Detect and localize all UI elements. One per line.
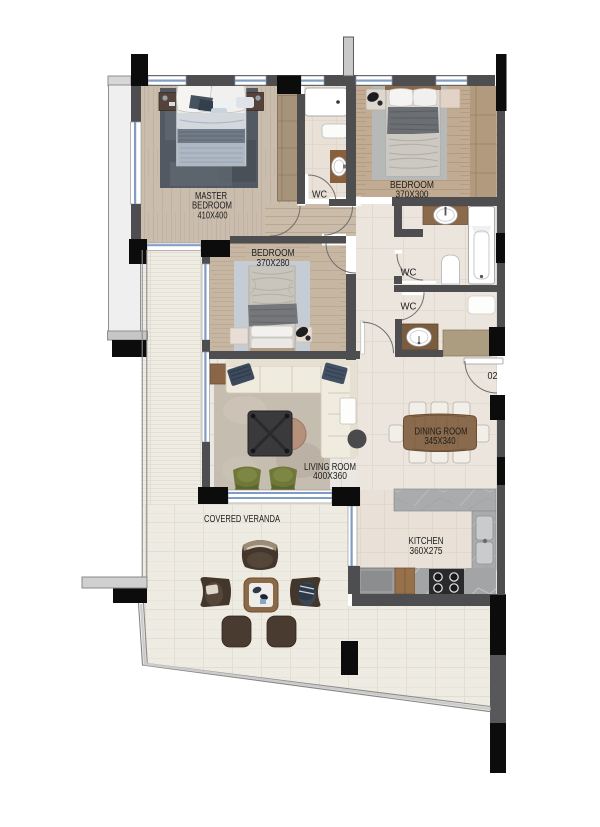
- svg-text:WC: WC: [401, 302, 417, 313]
- svg-text:WC: WC: [401, 268, 417, 279]
- svg-text:410X400: 410X400: [198, 210, 228, 221]
- svg-text:345X340: 345X340: [425, 436, 456, 447]
- svg-text:370X300: 370X300: [396, 190, 429, 201]
- svg-text:WC: WC: [312, 190, 327, 201]
- svg-text:370X280: 370X280: [257, 258, 290, 269]
- svg-text:KITCHEN: KITCHEN: [409, 536, 444, 547]
- svg-text:COVERED VERANDA: COVERED VERANDA: [204, 514, 280, 525]
- svg-text:02: 02: [488, 371, 498, 382]
- svg-text:360X275: 360X275: [410, 546, 443, 557]
- svg-text:400X360: 400X360: [313, 471, 347, 482]
